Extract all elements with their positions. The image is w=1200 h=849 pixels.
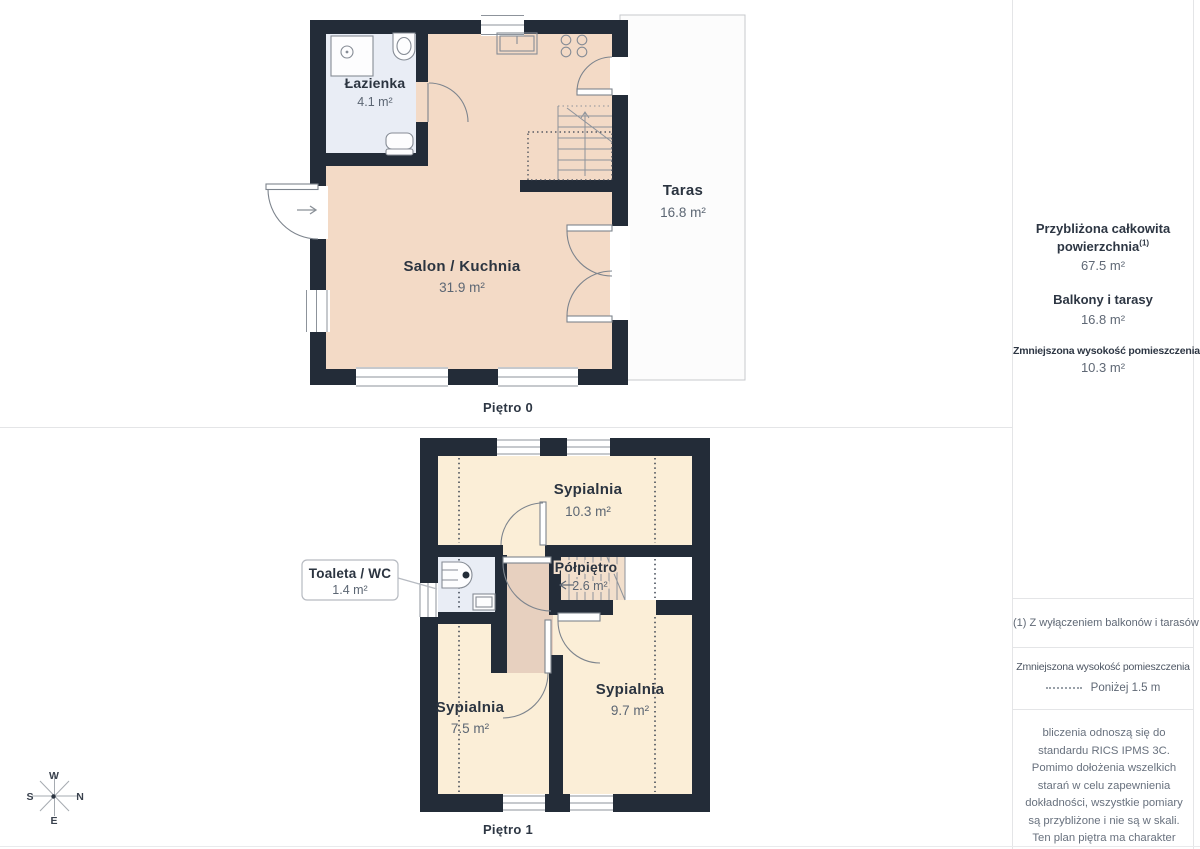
room-label-lazienka: Łazienka bbox=[345, 75, 406, 91]
room-label-toaleta: Toaleta / WC bbox=[309, 566, 391, 581]
room-area-polpietro: 2.6 m² bbox=[572, 579, 607, 593]
floorplan-page: Łazienka 4.1 m² Salon / Kuchnia 31.9 m² … bbox=[0, 0, 1200, 849]
total-area-value: 67.5 m² bbox=[1013, 258, 1193, 273]
room-area-salon: 31.9 m² bbox=[439, 280, 485, 295]
compass-icon: W N E S bbox=[26, 770, 83, 827]
total-area-title: Przybliżona całkowita powierzchnia(1) bbox=[1013, 220, 1193, 255]
sidebar: Przybliżona całkowita powierzchnia(1) 67… bbox=[1013, 0, 1193, 846]
floor1-caption: Piętro 1 bbox=[483, 822, 533, 837]
reduced-height-title: Zmniejszona wysokość pomieszczenia bbox=[1013, 345, 1193, 357]
room-area-sypialnia-top: 10.3 m² bbox=[565, 504, 611, 519]
floor0-caption: Piętro 0 bbox=[483, 400, 533, 415]
room-area-sypialnia-left: 7.5 m² bbox=[451, 721, 490, 736]
corridor-door-leaf bbox=[503, 557, 551, 563]
compass-bottom-letter: E bbox=[50, 815, 57, 827]
entry-door-leaf bbox=[266, 184, 318, 190]
room-label-sypialnia-right: Sypialnia bbox=[596, 681, 665, 698]
room-label-sypialnia-left: Sypialnia bbox=[436, 699, 505, 716]
reduced-height-value: 10.3 m² bbox=[1013, 360, 1193, 375]
disclaimer-text: bliczenia odnoszą się do standardu RICS … bbox=[1019, 725, 1189, 849]
room-area-taras: 16.8 m² bbox=[660, 205, 706, 220]
bedroom-right-door-leaf bbox=[558, 613, 600, 621]
room-area-sypialnia-right: 9.7 m² bbox=[611, 703, 650, 718]
dotted-line-sample-icon bbox=[1046, 687, 1082, 689]
total-area-footnote-marker: (1) bbox=[1139, 238, 1149, 247]
legend-row: Poniżej 1.5 m bbox=[1013, 682, 1193, 694]
legend-title: Zmniejszona wysokość pomieszczenia bbox=[1013, 661, 1193, 673]
legend-label: Poniżej 1.5 m bbox=[1091, 682, 1161, 694]
footnote-text: (1) Z wyłączeniem balkonów i tarasów bbox=[1013, 617, 1199, 629]
floor0-plan: Łazienka 4.1 m² Salon / Kuchnia 31.9 m² … bbox=[266, 14, 745, 415]
room-label-sypialnia-top: Sypialnia bbox=[554, 481, 623, 498]
kitchen-door-leaf bbox=[577, 89, 612, 95]
compass-top-letter: W bbox=[49, 770, 59, 782]
sidebar-legend-section: Zmniejszona wysokość pomieszczenia Poniż… bbox=[1013, 647, 1193, 709]
balconies-value: 16.8 m² bbox=[1013, 312, 1193, 327]
sidebar-footnote-section: (1) Z wyłączeniem balkonów i tarasów bbox=[1013, 598, 1193, 647]
toaleta-callout: Toaleta / WC 1.4 m² bbox=[302, 560, 437, 600]
bedroom-top-door-leaf bbox=[540, 502, 546, 545]
room-label-taras: Taras bbox=[663, 182, 703, 199]
floor1-plan: Toaleta / WC 1.4 m² Sypialnia 10.3 m² Pó… bbox=[302, 438, 710, 837]
toilet-icon bbox=[386, 133, 413, 149]
compass-right-letter: N bbox=[76, 791, 84, 803]
page-right-border bbox=[1193, 0, 1194, 849]
room-area-toaleta: 1.4 m² bbox=[332, 583, 367, 597]
low-height-area bbox=[625, 557, 692, 600]
compass-left-letter: S bbox=[26, 791, 33, 803]
room-label-salon: Salon / Kuchnia bbox=[403, 258, 520, 275]
sidebar-disclaimer-section: bliczenia odnoszą się do standardu RICS … bbox=[1013, 709, 1193, 846]
balconies-title: Balkony i tarasy bbox=[1013, 291, 1193, 309]
room-label-polpietro: Półpiętro bbox=[555, 559, 617, 575]
floors-divider bbox=[0, 427, 1012, 428]
room-area-lazienka: 4.1 m² bbox=[357, 95, 392, 109]
floorplan-canvas: Łazienka 4.1 m² Salon / Kuchnia 31.9 m² … bbox=[0, 0, 1012, 849]
bedroom-left-door-leaf bbox=[545, 620, 551, 673]
sidebar-stats-section: Przybliżona całkowita powierzchnia(1) 67… bbox=[1013, 0, 1193, 598]
